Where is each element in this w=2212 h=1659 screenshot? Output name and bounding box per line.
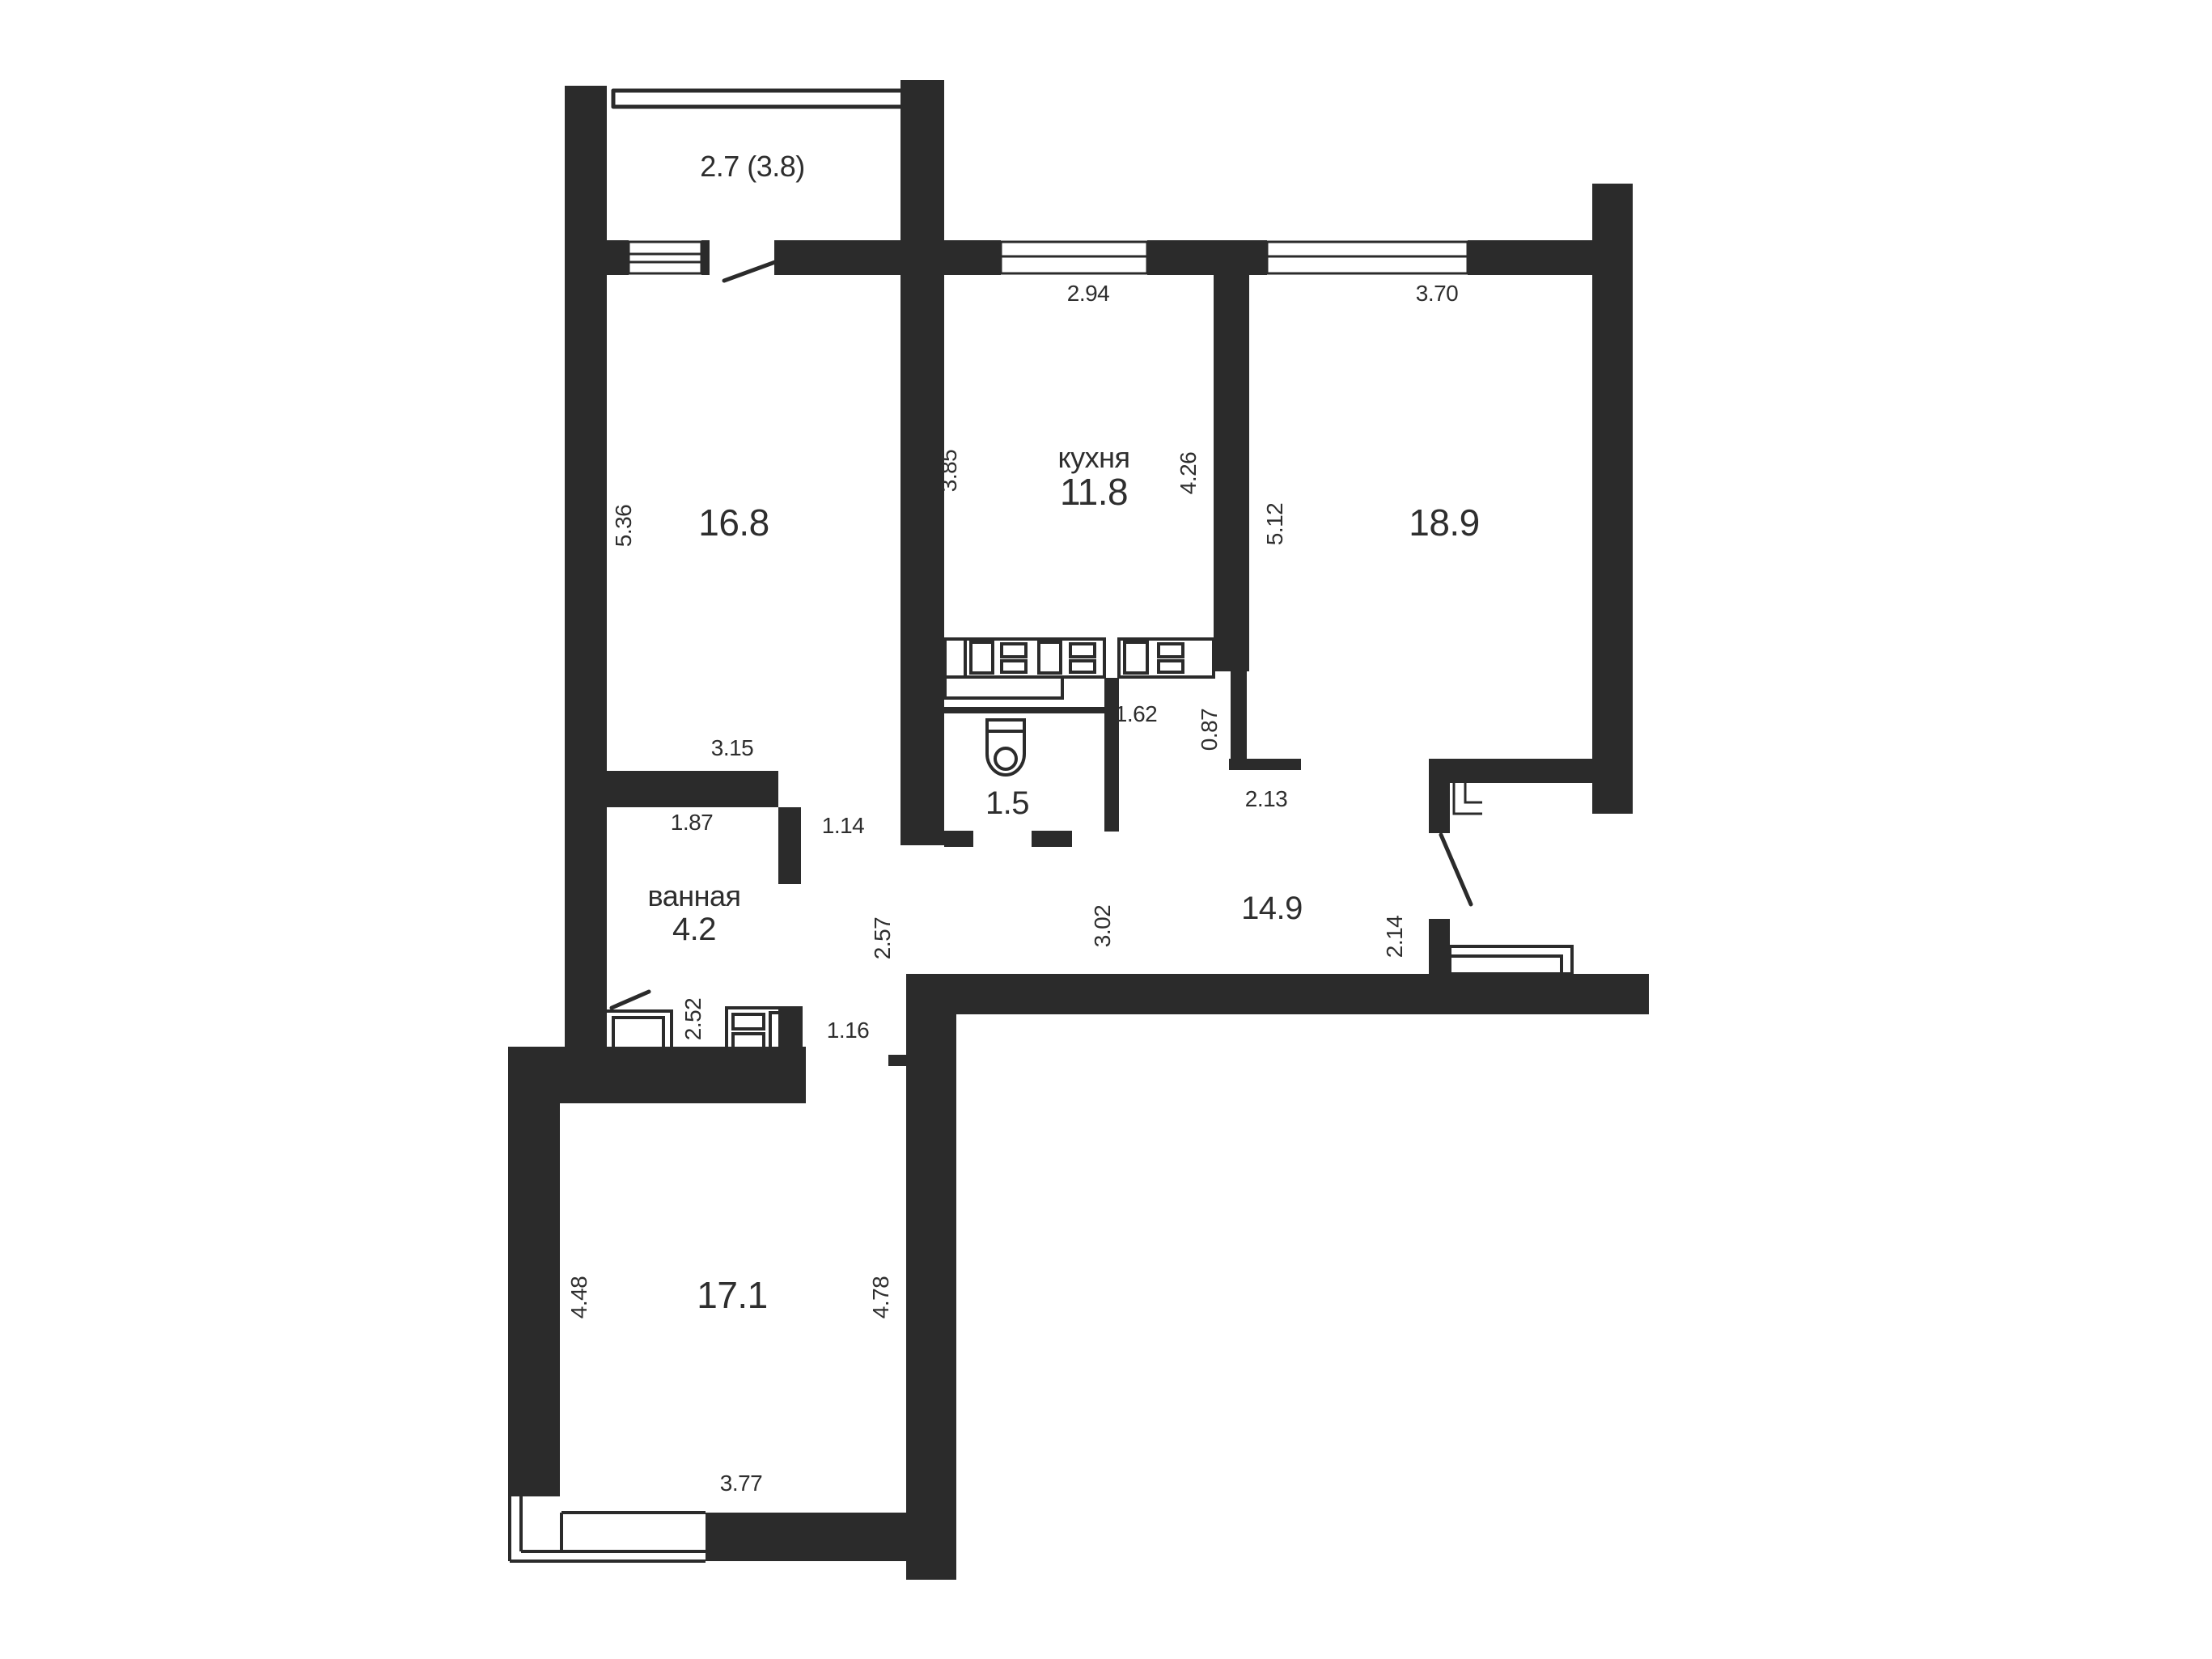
living-area-label: 16.8 [698, 502, 769, 544]
wall-step-horizontal [1229, 759, 1301, 770]
bedroom-height-label: 5.12 [1262, 503, 1287, 546]
entry-door-icon [1450, 946, 1572, 974]
bedroom-width-label: 3.70 [1416, 281, 1459, 306]
bedroom-door-swing-line [1441, 835, 1471, 904]
balcony-door-swing-line [724, 262, 775, 281]
bathroom-area-label: 4.2 [672, 912, 716, 947]
wall-living-bottom [607, 771, 778, 807]
bathroom-name-label: ванная [647, 879, 740, 912]
wall-step-thin [1231, 671, 1247, 770]
stub-entry [1429, 919, 1450, 974]
wc-wall-top [944, 707, 1119, 713]
balcony-railing-icon [613, 91, 900, 107]
hall-step-width-label: 2.13 [1245, 786, 1288, 811]
living-height-label: 5.36 [611, 505, 636, 548]
passage-width-label: 1.62 [1115, 701, 1158, 726]
step-height-label: 0.87 [1197, 709, 1222, 751]
wall-right [1592, 184, 1633, 814]
kitchen-height-left-label: 3.85 [936, 450, 961, 493]
bathroom-height-label: 2.52 [680, 998, 706, 1041]
wall-room2-right [906, 974, 956, 1580]
wall-top-a [944, 240, 1001, 275]
wall-left-upper [565, 86, 607, 1047]
wc-area-label: 1.5 [985, 785, 1029, 821]
bedroom-area-label: 18.9 [1409, 502, 1480, 544]
balcony-area-label: 2.7 (3.8) [700, 150, 805, 183]
room2-height-right-label: 4.78 [868, 1276, 893, 1319]
wall-top-c [1468, 240, 1592, 275]
kitchen-width-label: 2.94 [1067, 281, 1110, 306]
wall-bedroom-bottom [1429, 759, 1592, 783]
hallway-area-label: 14.9 [1241, 891, 1303, 926]
kitchen-counter-icon [945, 639, 1214, 698]
kitchen-height-right-label: 4.26 [1176, 452, 1201, 495]
nook-width-label: 1.14 [822, 813, 865, 838]
labels: 2.7 (3.8)2.943.703.85кухня11.84.265.1218… [566, 150, 1480, 1496]
stub-bathroom-upper [778, 807, 801, 884]
wc-wall-bottom-right [1032, 831, 1072, 847]
windows [510, 91, 1572, 1561]
room2-area-label: 17.1 [697, 1274, 768, 1316]
living-width-label: 3.15 [711, 735, 754, 760]
kitchen-name-label: кухня [1057, 441, 1129, 474]
tick-room2-door [888, 1055, 906, 1066]
toilet-icon [987, 720, 1024, 775]
bedroom-window-icon [1267, 242, 1468, 273]
band-room2-bottom [706, 1513, 956, 1561]
room2-width-label: 3.77 [720, 1471, 763, 1496]
loggia-outline-icon [510, 1487, 706, 1561]
wall-left-lower [508, 1047, 560, 1496]
wall-top-b [1147, 240, 1267, 275]
floor-plan-page: 2.7 (3.8)2.943.703.85кухня11.84.265.1218… [0, 0, 2212, 1659]
wall-living-top-a [607, 240, 629, 275]
band-hallway-bottom [956, 974, 1649, 1014]
entry-height-label: 2.14 [1382, 916, 1407, 959]
nook-height-label: 2.57 [870, 917, 895, 960]
room2-height-left-label: 4.48 [566, 1276, 591, 1319]
bathroom-width-label: 1.87 [671, 810, 714, 835]
wall-divider [1214, 275, 1249, 671]
kitchen-window-icon [1001, 242, 1147, 273]
kitchen-area-label: 11.8 [1060, 471, 1128, 513]
bedroom-door-icon [1454, 783, 1482, 814]
stub-bedroom-door [1429, 783, 1450, 833]
living-window-icon [629, 242, 701, 273]
wall-living-top-c [774, 240, 900, 275]
hall-height-label: 3.02 [1090, 905, 1115, 948]
wc-wall-bottom-left [944, 831, 973, 847]
room2-door-width-label: 1.16 [827, 1018, 870, 1043]
floor-plan: 2.7 (3.8)2.943.703.85кухня11.84.265.1218… [0, 0, 2212, 1659]
